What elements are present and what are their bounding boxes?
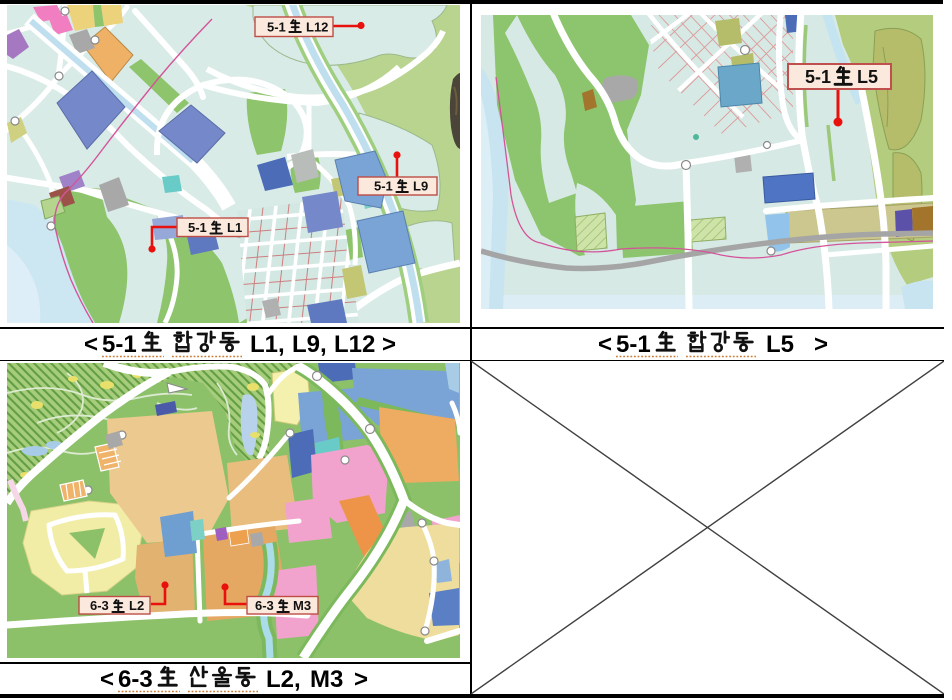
svg-text:5-1: 5-1 bbox=[188, 220, 207, 235]
svg-text:>: > bbox=[354, 666, 368, 693]
svg-text:L5: L5 bbox=[766, 331, 794, 358]
svg-text:5-1: 5-1 bbox=[374, 179, 393, 194]
svg-text:5-1: 5-1 bbox=[267, 20, 286, 35]
svg-text:L2,: L2, bbox=[266, 666, 301, 693]
svg-text:>: > bbox=[382, 331, 396, 358]
svg-text:5-1: 5-1 bbox=[616, 331, 651, 358]
svg-text:L9: L9 bbox=[413, 179, 428, 194]
svg-text:<: < bbox=[84, 331, 98, 358]
svg-text:L1: L1 bbox=[227, 220, 242, 235]
svg-text:6-3: 6-3 bbox=[255, 598, 274, 613]
svg-text:<: < bbox=[100, 666, 114, 693]
svg-text:L9,: L9, bbox=[292, 331, 327, 358]
svg-text:M3: M3 bbox=[293, 598, 311, 613]
svg-text:<: < bbox=[598, 331, 612, 358]
svg-text:L2: L2 bbox=[129, 598, 144, 613]
svg-text:>: > bbox=[814, 331, 828, 358]
svg-text:L5: L5 bbox=[857, 67, 878, 87]
svg-text:M3: M3 bbox=[310, 666, 343, 693]
svg-text:6-3: 6-3 bbox=[90, 598, 109, 613]
svg-text:L1,: L1, bbox=[250, 331, 285, 358]
svg-text:5-1: 5-1 bbox=[805, 67, 831, 87]
svg-text:6-3: 6-3 bbox=[118, 666, 153, 693]
svg-text:L12: L12 bbox=[306, 20, 328, 35]
svg-text:5-1: 5-1 bbox=[102, 331, 137, 358]
svg-text:L12: L12 bbox=[334, 331, 375, 358]
